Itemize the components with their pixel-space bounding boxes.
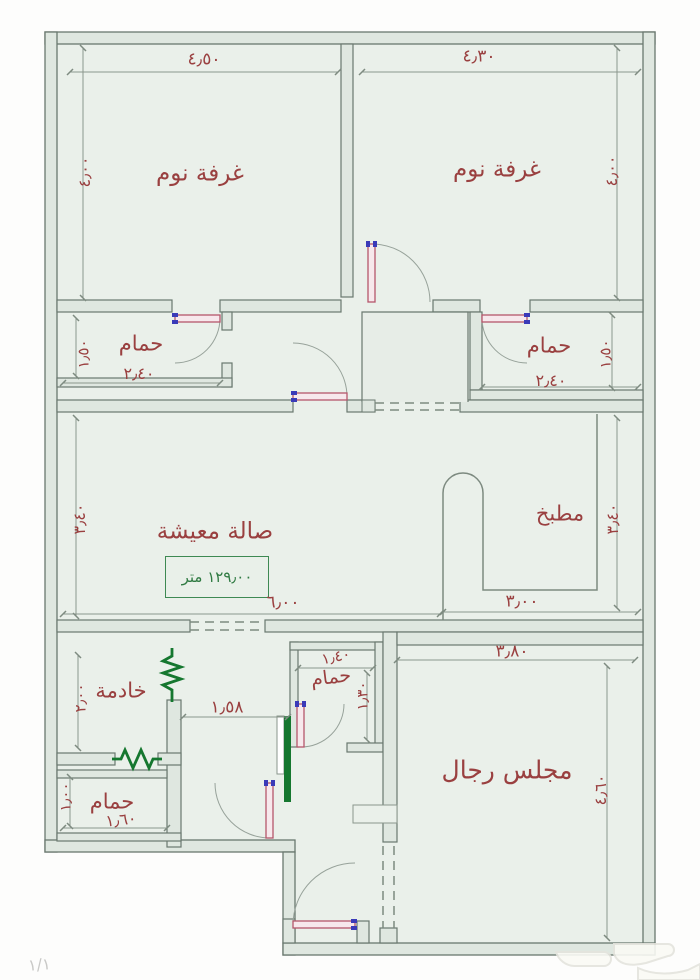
dim-kitchen-width: ٣٫٠٠ <box>506 594 539 611</box>
room-label-bath-top-right: حمام <box>527 336 572 357</box>
room-label-maid: خادمة <box>95 681 146 702</box>
room-label-bath-top-left: حمام <box>119 334 164 355</box>
dim-bath-top-left-height: ١٫٥٠ <box>77 339 92 368</box>
room-label-bedroom-left: غرفة نوم <box>156 163 244 186</box>
dim-bath-top-left-width: ٢٫٤٠ <box>124 366 155 382</box>
room-label-bath-middle: حمام <box>310 666 352 690</box>
dim-living-height: ٣٫٤٠ <box>72 504 88 535</box>
area-value: ١٢٩٫٠٠ متر <box>182 568 253 586</box>
dim-bath-top-right-width: ٢٫٤٠ <box>536 373 567 389</box>
dim-living-width: ٦٫٠٠ <box>267 595 300 612</box>
green-bar <box>284 716 291 802</box>
room-label-living: صالة معيشة <box>157 521 273 544</box>
dim-corridor-width: ١٫٥٨ <box>211 700 244 717</box>
dim-majlis-height: ٤٫٦٠ <box>593 775 609 806</box>
dim-bath-top-right-height: ١٫٥٠ <box>599 339 614 368</box>
dim-bath-middle-height: ١٫٣٠ <box>356 681 371 710</box>
floor-plan-drawing <box>0 0 700 980</box>
dim-kitchen-height: ٣٫٤٠ <box>605 504 621 535</box>
room-label-majlis: مجلس رجال <box>442 758 573 783</box>
dim-bedroom-left-height: ٤٫٠٠ <box>77 157 93 188</box>
dim-bedroom-right-height: ٤٫٠٠ <box>604 156 620 187</box>
room-label-kitchen: مطبخ <box>536 504 584 525</box>
wall-ledge <box>353 805 397 823</box>
room-label-bedroom-right: غرفة نوم <box>453 159 541 182</box>
page-marker: ١/١ <box>27 954 51 975</box>
area-box: ١٢٩٫٠٠ متر <box>165 556 269 598</box>
dim-bath-bottom-width: ١٫٦٠ <box>105 810 137 829</box>
dim-majlis-width: ٣٫٨٠ <box>496 644 529 661</box>
floor-plan-page: غرفة نوم غرفة نوم حمام حمام صالة معيشة م… <box>0 0 700 980</box>
dim-bedroom-left-width: ٤٫٥٠ <box>188 52 221 69</box>
dim-maid-height: ٢٫٠٠ <box>74 683 89 712</box>
dim-bath-bottom-height: ١٫٠٠ <box>59 782 74 811</box>
pocket-door-slot <box>277 716 284 774</box>
dim-bedroom-right-width: ٤٫٣٠ <box>463 49 496 66</box>
duct-shaft <box>362 312 468 412</box>
